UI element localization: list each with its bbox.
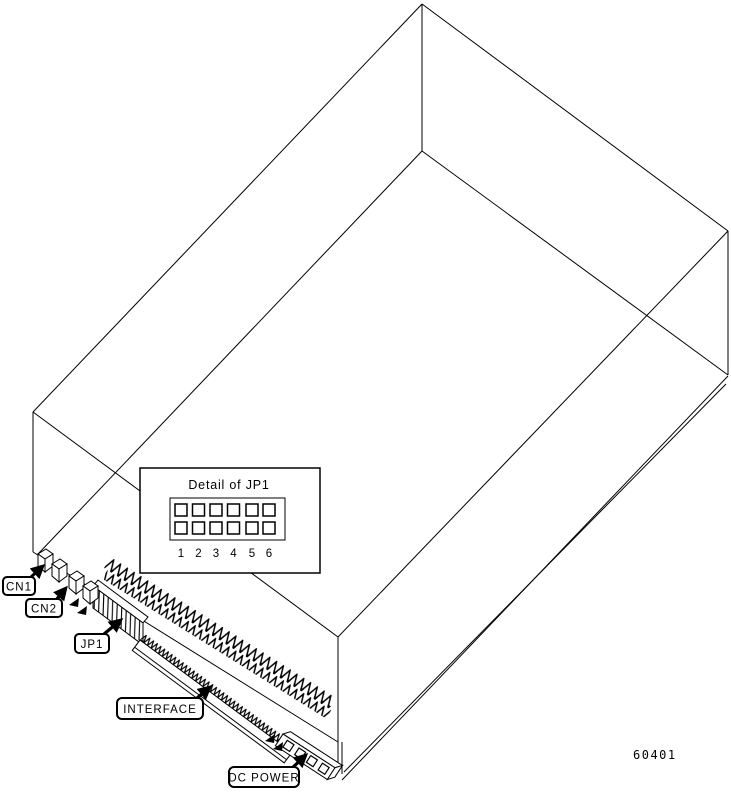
- edge-bottom-right-pcb: [344, 384, 726, 772]
- jp1-pin1-indicator-arrows: [69, 598, 87, 615]
- jp1-label: JP1: [81, 639, 104, 651]
- hardware-diagram: Detail of JP1 1 2 3 4 5 6: [0, 0, 731, 793]
- pin-number-5: 5: [249, 548, 255, 560]
- jp1-detail-inset: Detail of JP1 1 2 3 4 5 6: [140, 468, 320, 573]
- interface-label: INTERFACE: [123, 704, 197, 716]
- drive-body-wireframe: [33, 4, 728, 780]
- edge-top-left: [33, 4, 422, 412]
- drive-isometric-drawing: Detail of JP1 1 2 3 4 5 6: [0, 0, 731, 793]
- pin-number-1: 1: [178, 548, 184, 560]
- pin-number-4: 4: [230, 548, 237, 560]
- cn2-connector: [69, 571, 98, 604]
- pin-number-6: 6: [266, 548, 272, 560]
- dc-power-label: DC POWER: [228, 773, 299, 785]
- cn1-label: CN1: [6, 582, 32, 594]
- edge-top-right: [422, 4, 728, 231]
- cn2-label: CN2: [31, 604, 57, 616]
- edge-inner-right: [422, 151, 728, 375]
- pin-number-3: 3: [213, 548, 219, 560]
- pin-number-2: 2: [195, 548, 201, 560]
- detail-inset-title: Detail of JP1: [188, 478, 269, 492]
- edge-front-right: [338, 231, 728, 637]
- figure-number: 60401: [633, 748, 677, 762]
